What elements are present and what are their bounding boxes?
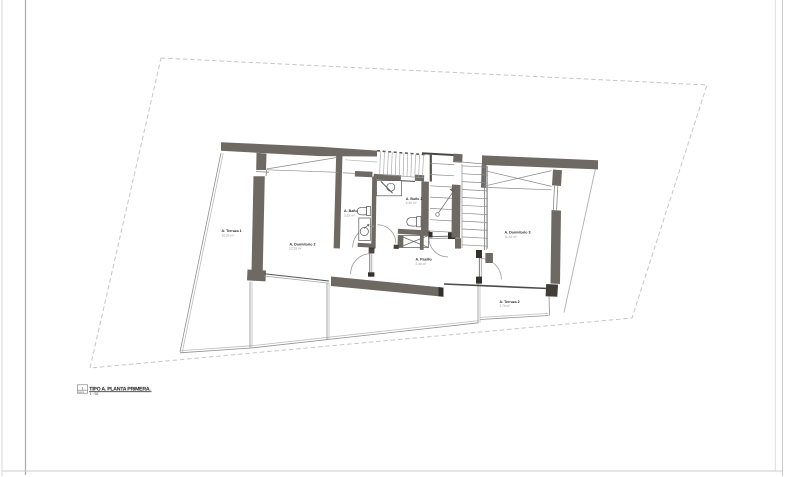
svg-text:A. Dormitorio 3: A. Dormitorio 3 bbox=[505, 231, 531, 235]
svg-text:A. Baño 2: A. Baño 2 bbox=[406, 197, 423, 201]
svg-text:2.34 m²: 2.34 m² bbox=[416, 262, 427, 266]
svg-text:A. Baño: A. Baño bbox=[344, 209, 358, 213]
svg-text:3.25 m²: 3.25 m² bbox=[344, 213, 355, 217]
svg-text:10.32 m²: 10.32 m² bbox=[222, 234, 235, 238]
svg-text:A. Dormitorio 2: A. Dormitorio 2 bbox=[290, 242, 316, 246]
svg-text:1: 1 bbox=[82, 386, 84, 390]
svg-text:A. Pasillo: A. Pasillo bbox=[416, 257, 433, 261]
svg-text:A101: A101 bbox=[78, 391, 85, 394]
svg-text:11.42 m²: 11.42 m² bbox=[505, 235, 517, 239]
svg-text:2.70 m²: 2.70 m² bbox=[500, 304, 511, 308]
svg-text:4.20 m²: 4.20 m² bbox=[406, 201, 417, 205]
svg-text:1 : 50: 1 : 50 bbox=[90, 392, 99, 396]
svg-text:A. Terraza 2: A. Terraza 2 bbox=[500, 300, 520, 304]
svg-text:12.29 m²: 12.29 m² bbox=[289, 247, 302, 251]
svg-text:A. Terraza 1: A. Terraza 1 bbox=[222, 229, 242, 233]
